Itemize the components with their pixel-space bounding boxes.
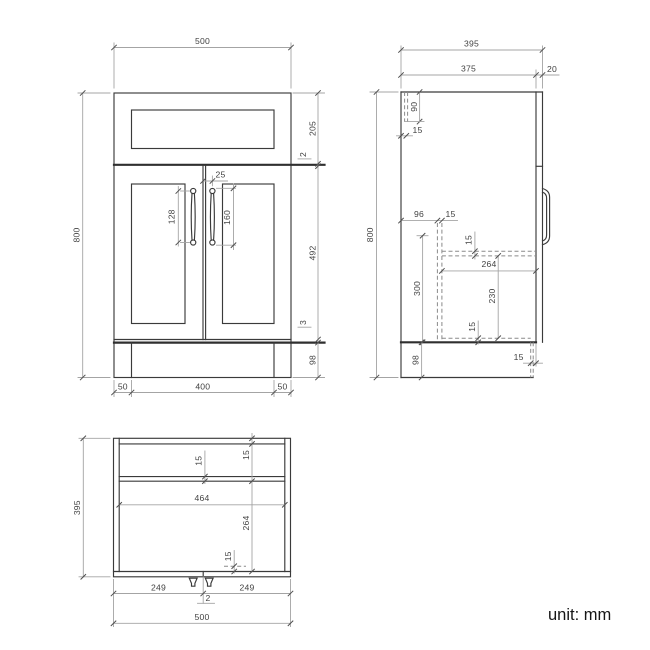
front-dim-plinth-width: 400	[195, 382, 210, 392]
front-dim-plinth-height: 98	[308, 355, 318, 365]
front-dim-door-height: 492	[308, 246, 318, 261]
side-dim-front-thickness: 20	[547, 64, 557, 74]
side-dim-interior-height: 300	[412, 281, 422, 296]
front-cabinet-outline	[114, 93, 325, 378]
plan-dim-front-clearance: 15	[223, 551, 233, 561]
front-dim-handle-offset: 25	[216, 170, 226, 180]
plan-door-handles	[189, 578, 213, 586]
side-dim-divider-thickness: 15	[446, 209, 456, 219]
side-dimension-lines	[370, 46, 559, 380]
front-dim-height: 800	[72, 228, 82, 243]
side-dim-plinth-height: 98	[410, 355, 420, 365]
plan-dim-interior-depth: 264	[241, 516, 251, 531]
plan-dim-left-door: 249	[151, 582, 166, 592]
front-dim-plinth-inset-right: 50	[278, 382, 288, 392]
drawing-svg: 500 800 205 2 492 3 98 25 128 160 50 400…	[0, 0, 650, 650]
side-dim-carcass-depth: 375	[461, 64, 476, 74]
side-dim-back-panel: 15	[413, 125, 423, 135]
plan-dim-back-panel: 15	[241, 450, 251, 460]
side-dim-depth: 395	[464, 39, 479, 49]
plan-dim-door-gap: 2	[206, 593, 211, 603]
front-dim-bottom-gap: 3	[298, 320, 308, 325]
side-dim-drawer-box-height: 90	[409, 102, 419, 112]
front-dim-width: 500	[195, 36, 210, 46]
side-dim-shelf-depth: 264	[482, 259, 497, 269]
side-door-handle	[543, 189, 550, 245]
technical-drawing: 500 800 205 2 492 3 98 25 128 160 50 400…	[0, 0, 650, 650]
plan-view: 395 15 15 464 264 15 249 2 249 500	[72, 434, 293, 627]
plan-dim-interior-width: 464	[195, 493, 210, 503]
plan-dim-width: 500	[195, 612, 210, 622]
front-dim-drawer-height: 205	[308, 121, 318, 136]
plan-dim-rail-thickness: 15	[194, 456, 204, 466]
plan-dim-depth: 395	[72, 500, 82, 515]
side-dim-plinth-recess: 15	[514, 352, 524, 362]
front-dim-handle-length: 160	[222, 210, 232, 225]
side-dim-back-clearance: 96	[414, 209, 424, 219]
front-dim-drawer-gap: 2	[298, 152, 308, 157]
side-view: 395 375 20 800 90 15 96 15 300 15 264 23…	[365, 39, 559, 381]
side-dim-shelf-thickness: 15	[464, 235, 474, 245]
unit-label: unit: mm	[548, 606, 638, 625]
front-view: 500 800 205 2 492 3 98 25 128 160 50 400…	[72, 36, 325, 397]
front-dim-handle-spacing: 128	[167, 209, 177, 224]
side-dim-shelf-drop: 230	[487, 289, 497, 304]
side-dim-height: 800	[365, 227, 375, 242]
plan-dim-right-door: 249	[240, 582, 255, 592]
front-dim-plinth-inset-left: 50	[118, 382, 128, 392]
side-dim-bottom-clearance: 15	[467, 322, 477, 332]
plan-dimension-lines	[79, 434, 293, 627]
